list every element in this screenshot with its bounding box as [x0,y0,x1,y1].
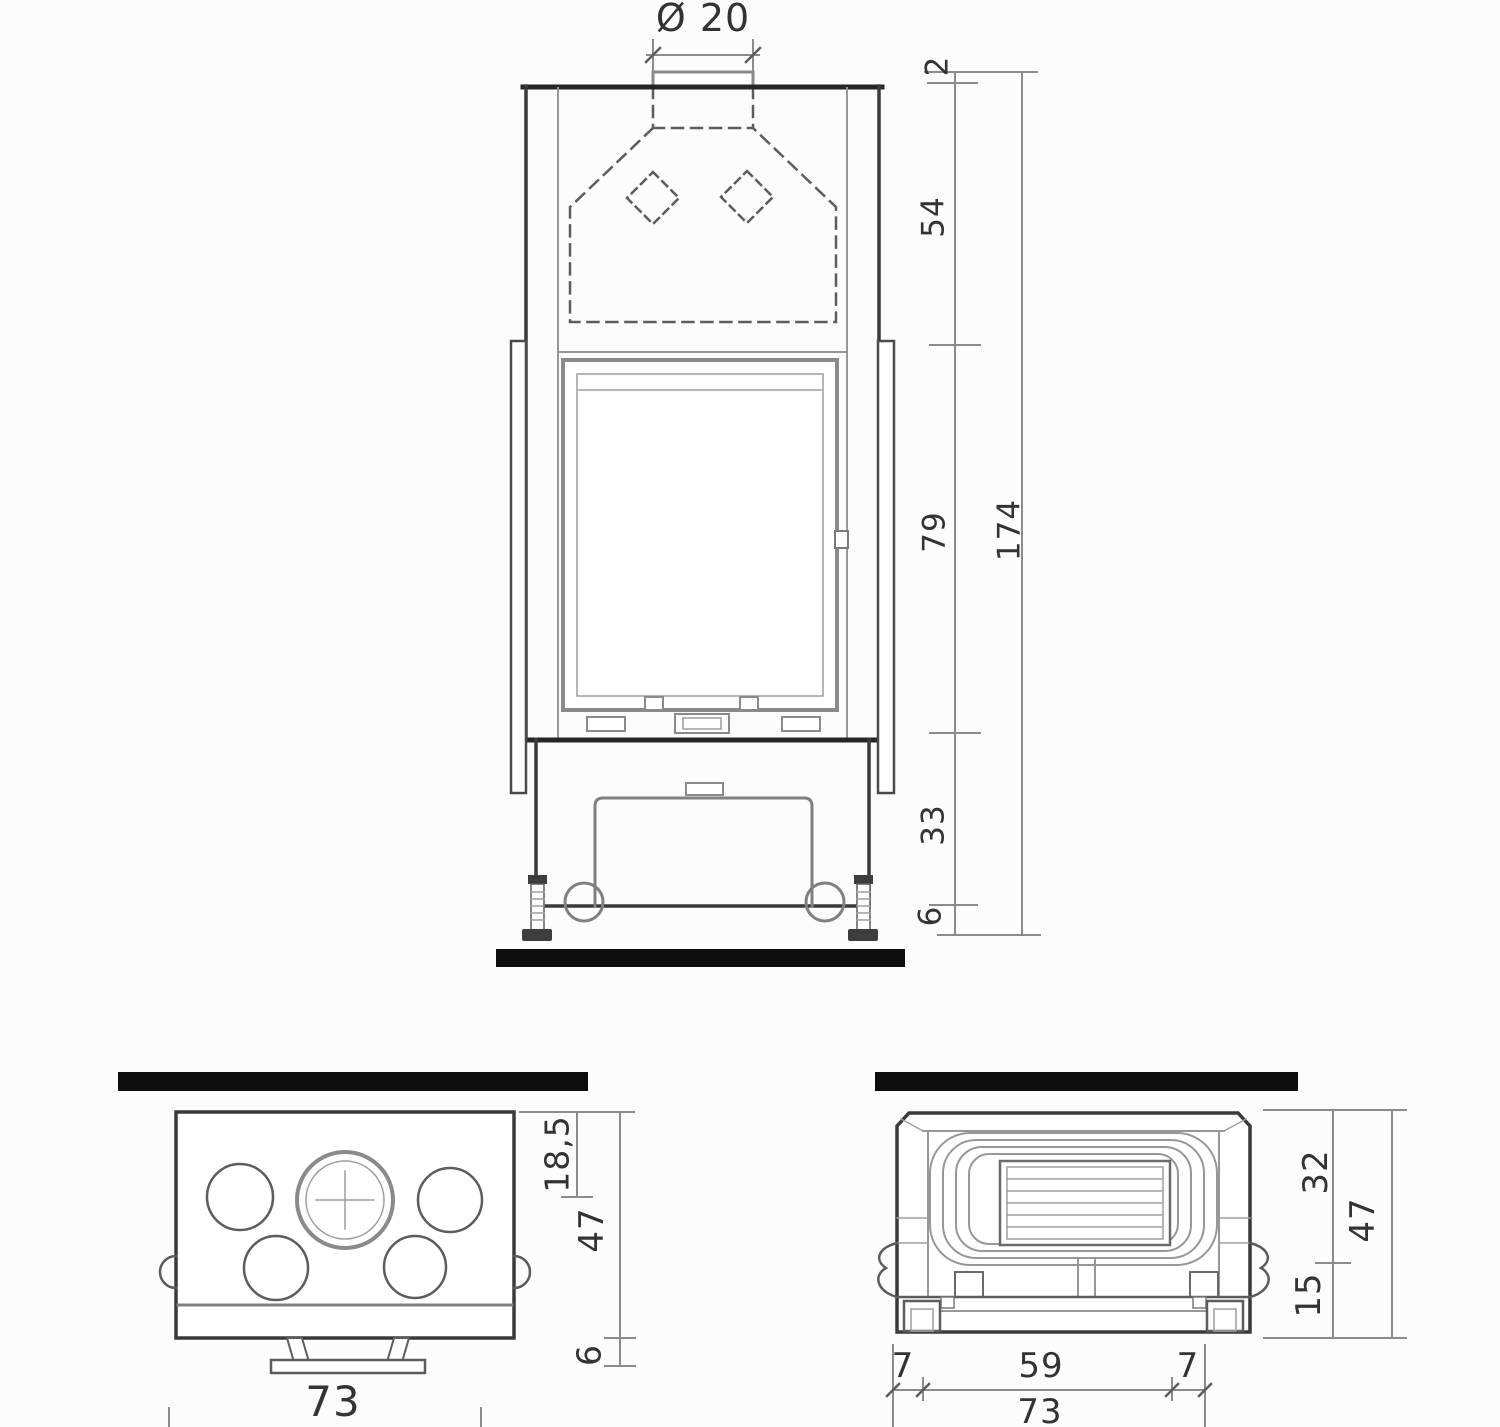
damper-diamond-right [721,171,773,223]
bottom-view [875,1072,1298,1332]
dim-label-bottom-right-margin: 7 [1177,1349,1200,1383]
dim-label-flue-diameter: Ø 20 [656,0,750,37]
dim-label-door-height: 79 [920,511,951,552]
dim-label-feet-height: 6 [916,906,947,927]
flue-collar [653,72,753,128]
side-bulge-right [1250,1243,1269,1297]
air-vent-strip [587,714,820,733]
side-lug-left [160,1256,176,1288]
technical-drawing: Ø 20 2 54 79 174 33 6 18,5 47 6 73 32 47… [0,0,1500,1427]
drawing-linework [0,0,1500,1427]
glass-door [563,360,848,710]
dim-label-collar-height: 2 [923,56,954,77]
grille-slats [1000,1161,1170,1245]
corner-foot-left [904,1301,940,1331]
base-plinth [536,740,869,921]
door-handle [835,531,848,548]
wall-bar-right [875,1072,1298,1091]
dim-label-bottom-total-depth: 47 [1346,1197,1380,1242]
plinth-opening [595,798,812,906]
flue-dimension-lines [646,40,760,72]
adjustable-foot-left [522,875,552,941]
dim-label-bottom-back: 32 [1299,1149,1333,1194]
dim-label-total-height: 174 [995,499,1026,561]
floor-line [496,949,905,967]
side-lug-right [514,1256,530,1288]
adjustable-foot-right [848,875,878,941]
side-panel-right [878,341,894,793]
dim-label-flue-center-depth: 18,5 [541,1115,574,1192]
wall-bar-left [118,1072,588,1091]
front-view [496,40,905,967]
corner-foot-right [1207,1301,1243,1331]
dim-label-bottom-front: 15 [1292,1272,1326,1317]
door-protrusion [271,1338,425,1373]
front-foot-left [565,883,603,921]
dim-label-top-depth: 47 [575,1207,609,1252]
dim-label-base-height: 33 [919,804,950,845]
side-panel-left [511,341,526,793]
dim-label-top-front: 6 [573,1344,606,1366]
top-view [118,1072,588,1373]
damper-diamond-left [627,172,679,224]
dim-label-bottom-width: 73 [1017,1395,1062,1427]
side-bulge-left [878,1243,897,1297]
smoke-chamber-hidden-outline [570,128,836,322]
plinth-latch [686,783,723,795]
dim-label-top-width: 73 [305,1381,360,1423]
dim-label-bottom-inner-width: 59 [1018,1349,1063,1383]
dim-label-bottom-left-margin: 7 [892,1349,915,1383]
dim-label-hood-height: 54 [919,196,950,237]
